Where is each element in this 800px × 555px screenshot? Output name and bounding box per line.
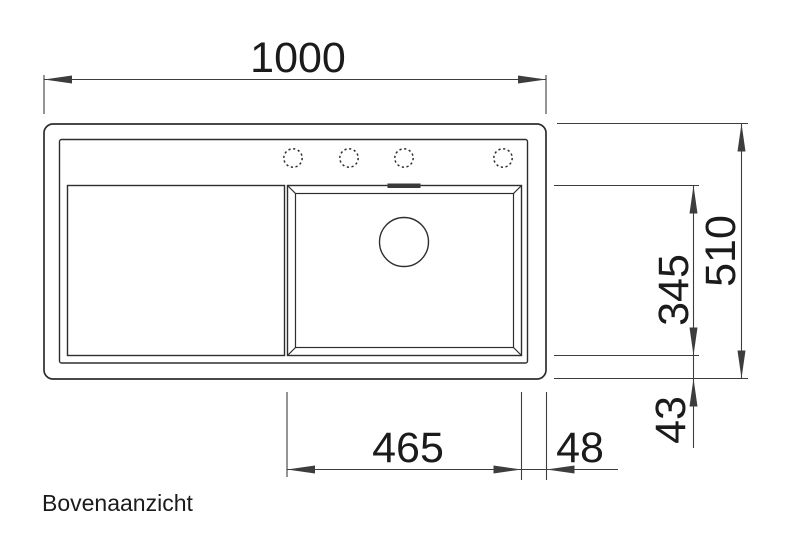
dim-arrow-down [738, 351, 746, 379]
sink-rim-edge [60, 140, 528, 364]
technical-drawing-canvas: 1000 510 345 43 465 48 Bovenaanzicht [0, 0, 800, 555]
drainboard [68, 186, 285, 356]
view-label: Bovenaanzicht [42, 490, 193, 516]
dim-label-bowl-width: 465 [372, 424, 444, 472]
dim-bowl-width: 465 48 [287, 392, 618, 480]
bowl-corner-chamfer [514, 348, 522, 356]
dim-arrow-down [690, 328, 698, 356]
bowl-outer-edge [288, 186, 522, 356]
dim-arrow-left [44, 76, 72, 84]
faucet-holes [284, 149, 512, 167]
dim-label-overall-depth: 510 [697, 215, 745, 287]
dim-label-overall-width: 1000 [250, 34, 346, 82]
dim-label-bowl-to-edge-bottom: 43 [647, 396, 695, 444]
bowl-corner-chamfer [288, 348, 296, 356]
bowl-corner-chamfer [514, 186, 522, 194]
dim-arrow-right [494, 466, 522, 474]
dim-arrow-right [518, 76, 546, 84]
dim-overall-depth: 510 [554, 124, 748, 379]
dim-label-bowl-depth: 345 [650, 254, 698, 326]
faucet-hole-icon [395, 149, 413, 167]
faucet-hole-icon [284, 149, 302, 167]
dim-label-bowl-to-edge-right: 48 [556, 424, 604, 472]
dim-bowl-depth: 345 [554, 186, 699, 356]
faucet-hole-icon [494, 149, 512, 167]
dim-bowl-to-edge-bottom: 43 [647, 356, 698, 449]
drain-hole [380, 218, 429, 267]
bowl-corner-chamfer [288, 186, 296, 194]
bowl [288, 184, 522, 356]
dim-arrow-left [287, 466, 315, 474]
faucet-hole-icon [340, 149, 358, 167]
dim-arrow-up [690, 186, 698, 214]
dim-overall-width: 1000 [44, 34, 546, 114]
overflow-slot [388, 184, 421, 189]
sink-top-view-drawing: 1000 510 345 43 465 48 Bovenaanzicht [0, 0, 800, 555]
dim-arrow-up [738, 124, 746, 152]
bowl-inner-edge [296, 194, 514, 348]
